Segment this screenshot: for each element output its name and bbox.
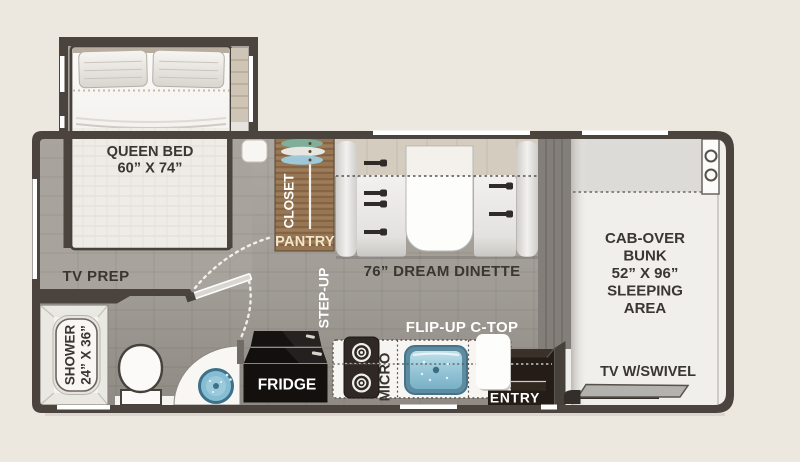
- svg-text:SHOWER: SHOWER: [63, 325, 78, 386]
- svg-text:60” X 74”: 60” X 74”: [118, 161, 183, 177]
- svg-text:76” DREAM DINETTE: 76” DREAM DINETTE: [364, 263, 521, 280]
- svg-text:ENTRY: ENTRY: [490, 391, 540, 406]
- svg-text:BUNK: BUNK: [623, 248, 666, 265]
- svg-text:CAB-OVER: CAB-OVER: [605, 230, 685, 247]
- svg-text:PANTRY: PANTRY: [275, 234, 335, 250]
- svg-text:MICRO: MICRO: [378, 353, 394, 402]
- svg-text:FRIDGE: FRIDGE: [258, 377, 317, 394]
- svg-text:TV PREP: TV PREP: [63, 268, 130, 285]
- svg-text:24” X 36”: 24” X 36”: [79, 325, 94, 385]
- svg-text:SLEEPING: SLEEPING: [607, 283, 683, 300]
- svg-text:STEP-UP: STEP-UP: [316, 268, 332, 329]
- svg-text:CLOSET: CLOSET: [282, 173, 297, 229]
- svg-text:FLIP-UP C-TOP: FLIP-UP C-TOP: [406, 319, 519, 336]
- svg-text:TV W/SWIVEL: TV W/SWIVEL: [600, 364, 696, 380]
- svg-text:QUEEN BED: QUEEN BED: [107, 144, 194, 160]
- svg-text:52” X 96”: 52” X 96”: [612, 265, 679, 282]
- svg-text:AREA: AREA: [624, 300, 667, 317]
